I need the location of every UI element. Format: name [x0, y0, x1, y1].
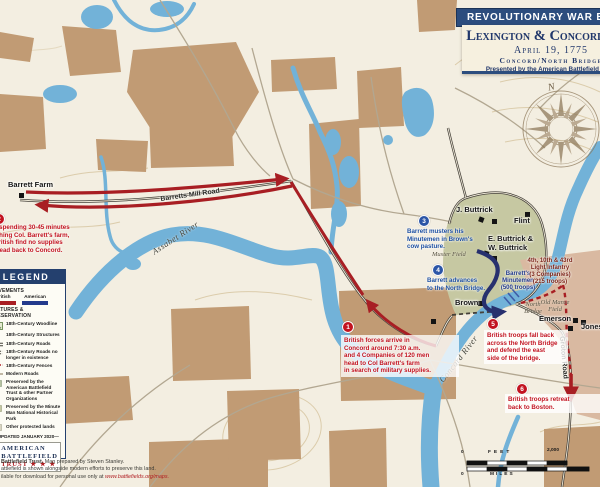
legend-item-woodline: 18th-Century Woodline — [0, 321, 62, 330]
american-color-swatch — [22, 301, 48, 305]
other-protected-swatch — [0, 424, 3, 431]
map-credits: Battlefield Trust. Map prepared by Steve… — [1, 459, 169, 481]
legend-item-other-protected: Other protected lands — [0, 424, 62, 432]
woodline-icon — [0, 322, 3, 330]
credits-line-1: Battlefield Trust. Map prepared by Steve… — [1, 459, 169, 466]
label-light-infantry: 4th, 10th & 43rd Light Infantry (3 Compa… — [524, 258, 576, 286]
legend-item-structures: 18th-Century Structures — [0, 332, 62, 339]
scale-feet-max: 2,000 — [547, 448, 559, 453]
legend-item-roads: 18th-Century Roads — [0, 341, 62, 347]
legend-american: American — [22, 295, 48, 305]
scale-feet-label: FEET — [488, 450, 512, 455]
legend-header: LEGEND — [0, 270, 65, 284]
label-j-buttrick: J. Buttrick — [456, 206, 493, 215]
label-north-bridge: North Bridge — [520, 301, 546, 315]
credits-line-2: attlefield is shown alongside modern eff… — [1, 466, 169, 473]
battle-date: April 19, 1775 — [462, 45, 600, 56]
callout-3-number: 3 — [418, 215, 430, 227]
british-color-swatch — [0, 301, 16, 305]
callout-4-text: Barrett advances to the North Bridge. — [427, 277, 497, 292]
scale-feet-min: 0 — [461, 450, 464, 455]
label-brown: Brown — [455, 299, 478, 308]
battle-title: Lexington & Concord, MA — [462, 28, 600, 45]
label-barrett-farm: Barrett Farm — [8, 181, 53, 190]
legend-features-label: FEATURES & PRESERVATION — [0, 307, 62, 319]
callout-5-text: British troops fall back across the Nort… — [484, 330, 568, 364]
legend-british: British — [0, 295, 16, 305]
legend-item-modern-roads: Modern Roads — [0, 371, 62, 377]
scale-miles-min: 0 — [461, 472, 464, 477]
modern-road-icon — [0, 372, 3, 376]
label-emerson: Emerson — [539, 315, 571, 324]
credits-line-3: ilable for download for personal use onl… — [1, 474, 169, 481]
callout-4-number: 4 — [432, 264, 444, 276]
label-muster-field: Muster Field — [432, 251, 466, 258]
label-flint: Flint — [514, 217, 530, 226]
callout-1-number: 1 — [342, 321, 354, 333]
legend-item-fences: 18th-Century Fences — [0, 363, 62, 369]
label-jones: Jones — [581, 323, 600, 332]
legend-updated: —UPDATED JANUARY 2020— — [0, 434, 62, 439]
legend-item-preserved-mmnhp: Preserved by the Minute Man National His… — [0, 404, 62, 421]
preserved-abt-swatch — [0, 380, 3, 387]
battle-map-page: { "title_panel": { "banner": "REVOLUTION… — [0, 0, 600, 487]
preserved-mmnhp-swatch — [0, 405, 3, 412]
callout-5-number: 5 — [487, 318, 499, 330]
presented-by: Presented by the American Battlefield Tr… — [462, 66, 600, 73]
callout-2-text: After spending 30-45 minutes searching C… — [0, 224, 95, 254]
battle-subtitle: Concord/North Bridge — [462, 56, 600, 65]
fence-icon — [0, 363, 3, 367]
scale-miles-label: MILES — [490, 472, 515, 477]
legend-movements-label: MOVEMENTS — [0, 288, 62, 294]
legend-panel: LEGEND MOVEMENTS British American FEATUR… — [0, 269, 66, 459]
label-e-w-buttrick: E. Buttrick & W. Buttrick — [488, 235, 533, 252]
legend-movements: British American — [0, 295, 62, 305]
legend-item-preserved-abt: Preserved by the American Battlefield Tr… — [0, 379, 62, 402]
battlefields-url-link[interactable]: www.battlefields.org/maps. — [105, 474, 169, 480]
title-panel: Lexington & Concord, MA April 19, 1775 C… — [462, 25, 600, 74]
callout-3-text: Barrett musters his Minutemen in Brown's… — [407, 228, 477, 251]
callout-1-text: British forces arrive in Concord around … — [341, 335, 459, 377]
historic-road-icon — [0, 342, 3, 347]
callout-6-text: British troops retreat back to Boston. — [505, 394, 600, 413]
structure-icon — [0, 333, 3, 339]
legend-item-roads-gone: 18th-Century Roads no longer in existenc… — [0, 349, 62, 360]
historic-road-gone-icon — [0, 350, 3, 355]
